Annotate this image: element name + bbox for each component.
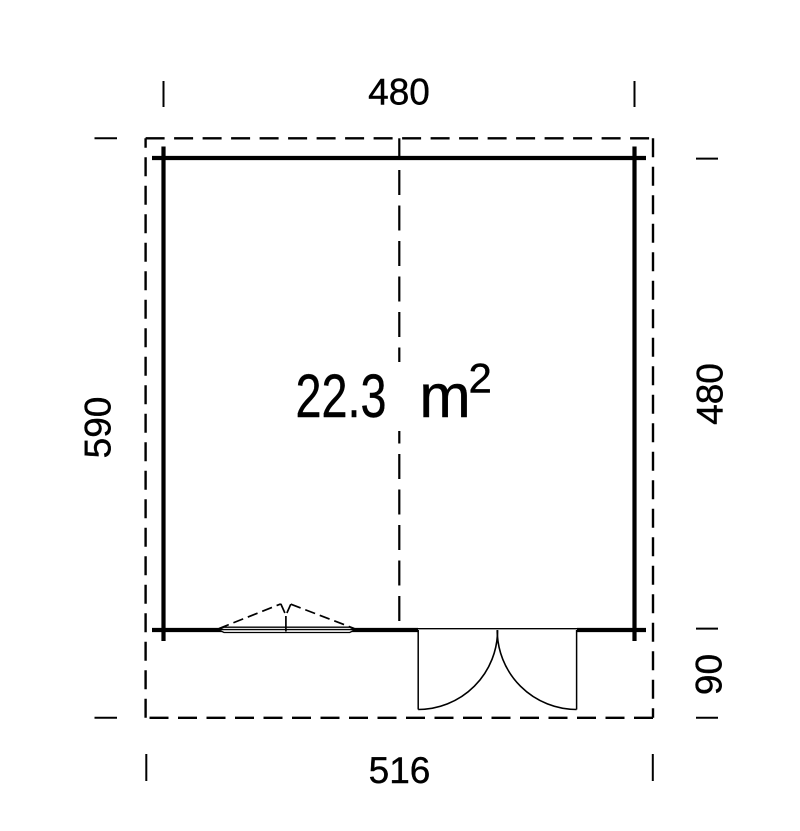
svg-text:480: 480: [368, 72, 430, 113]
svg-text:m: m: [419, 362, 471, 430]
svg-text:590: 590: [78, 397, 119, 459]
svg-text:90: 90: [689, 654, 730, 695]
svg-text:22.3: 22.3: [296, 362, 387, 430]
svg-text:516: 516: [369, 750, 431, 791]
svg-text:2: 2: [469, 355, 492, 402]
svg-text:480: 480: [690, 363, 731, 425]
